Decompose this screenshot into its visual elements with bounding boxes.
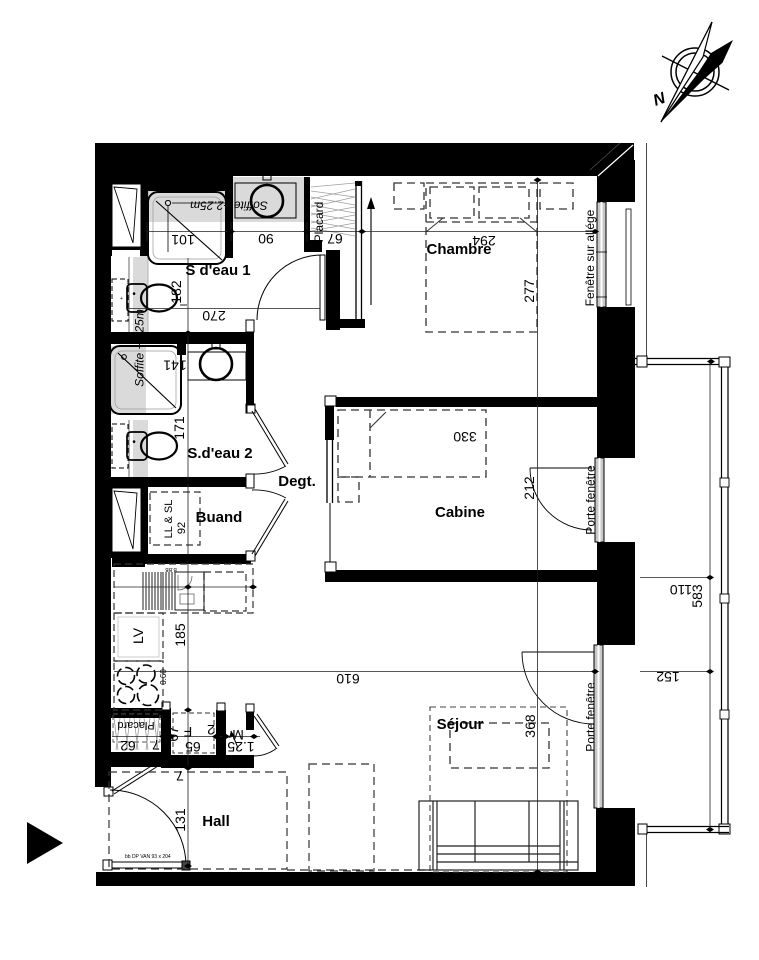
svg-text:62: 62	[120, 738, 136, 754]
svg-text:131: 131	[172, 808, 188, 832]
svg-text:Fenêtre sur allége: Fenêtre sur allége	[583, 209, 597, 306]
svg-text:1.25: 1.25	[227, 739, 254, 755]
svg-text:Placard: Placard	[117, 719, 154, 731]
svg-text:92: 92	[176, 522, 188, 534]
svg-text:Porte fenêtre: Porte fenêtre	[583, 465, 597, 535]
svg-text:182: 182	[168, 280, 184, 304]
svg-text:90: 90	[258, 231, 274, 247]
svg-text:bb DP VAN 93 x 204: bb DP VAN 93 x 204	[125, 854, 171, 860]
svg-text:185: 185	[172, 623, 188, 647]
svg-text:212: 212	[521, 476, 537, 500]
svg-text:277: 277	[521, 279, 537, 303]
svg-text:171: 171	[171, 416, 187, 440]
svg-text:Hall: Hall	[202, 813, 230, 830]
svg-text:294: 294	[472, 233, 496, 249]
svg-text:•: •	[133, 440, 135, 446]
svg-text:330: 330	[453, 429, 477, 445]
svg-text:65: 65	[185, 739, 201, 755]
svg-text:Soffite +2.25m: Soffite +2.25m	[190, 199, 268, 213]
svg-text:0.60: 0.60	[159, 669, 168, 685]
svg-text:LV: LV	[130, 627, 146, 644]
svg-text:141: 141	[163, 357, 187, 373]
svg-text:7: 7	[176, 768, 184, 784]
svg-text:S.d'eau 2: S.d'eau 2	[187, 445, 252, 462]
svg-text:583: 583	[689, 584, 705, 608]
svg-text:Placard: Placard	[312, 202, 326, 243]
svg-text:610: 610	[336, 671, 360, 687]
svg-text:Soffite +2.25m: Soffite +2.25m	[132, 309, 146, 387]
svg-text:Degt.: Degt.	[278, 473, 316, 490]
svg-text:LL & SL: LL & SL	[163, 500, 175, 539]
svg-text:67: 67	[165, 726, 181, 742]
svg-text:Buand: Buand	[196, 509, 243, 526]
svg-text:B.BB: B.BB	[165, 566, 177, 572]
svg-text:+: +	[120, 296, 123, 302]
svg-text:101: 101	[171, 232, 195, 248]
svg-text:7: 7	[152, 737, 160, 753]
svg-text:152: 152	[656, 669, 680, 685]
svg-text:368: 368	[522, 714, 538, 738]
svg-text:67: 67	[327, 231, 343, 247]
svg-text:F: F	[184, 724, 193, 740]
svg-text:•: •	[133, 292, 135, 298]
svg-text:2: 2	[207, 722, 215, 738]
svg-text:Cabine: Cabine	[435, 504, 485, 521]
svg-text:Séjour: Séjour	[437, 716, 484, 733]
svg-text:Porte fenêtre: Porte fenêtre	[583, 682, 597, 752]
svg-text:S d'eau 1: S d'eau 1	[185, 262, 250, 279]
svg-text:270: 270	[202, 308, 226, 324]
